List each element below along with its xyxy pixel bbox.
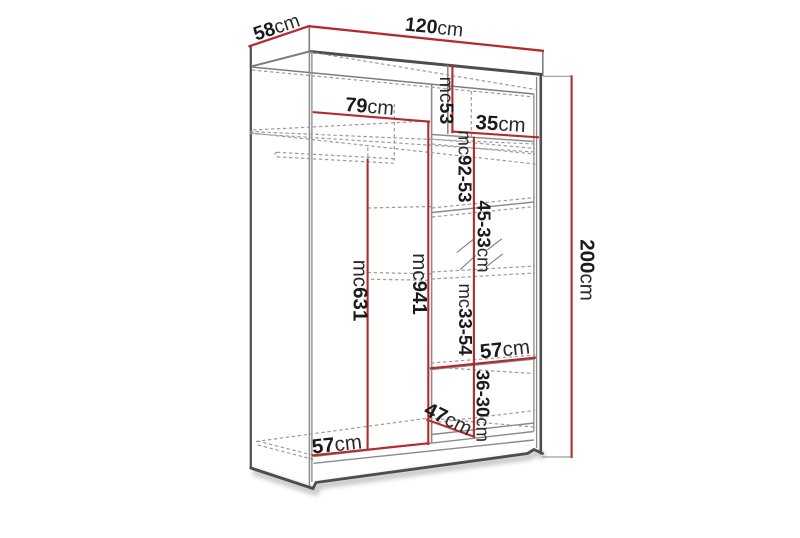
svg-text:45-33cm: 45-33cm [474, 201, 495, 273]
svg-text:79cm: 79cm [344, 94, 395, 120]
svg-text:mc941: mc941 [408, 253, 431, 315]
svg-text:mc631: mc631 [348, 260, 371, 322]
svg-text:35cm: 35cm [475, 111, 526, 137]
svg-text:mc33-54: mc33-54 [455, 284, 476, 357]
svg-text:mc53: mc53 [435, 77, 457, 125]
svg-text:36-30cm: 36-30cm [473, 370, 494, 442]
svg-text:mc92-53: mc92-53 [455, 131, 476, 203]
svg-text:200cm: 200cm [575, 239, 598, 301]
